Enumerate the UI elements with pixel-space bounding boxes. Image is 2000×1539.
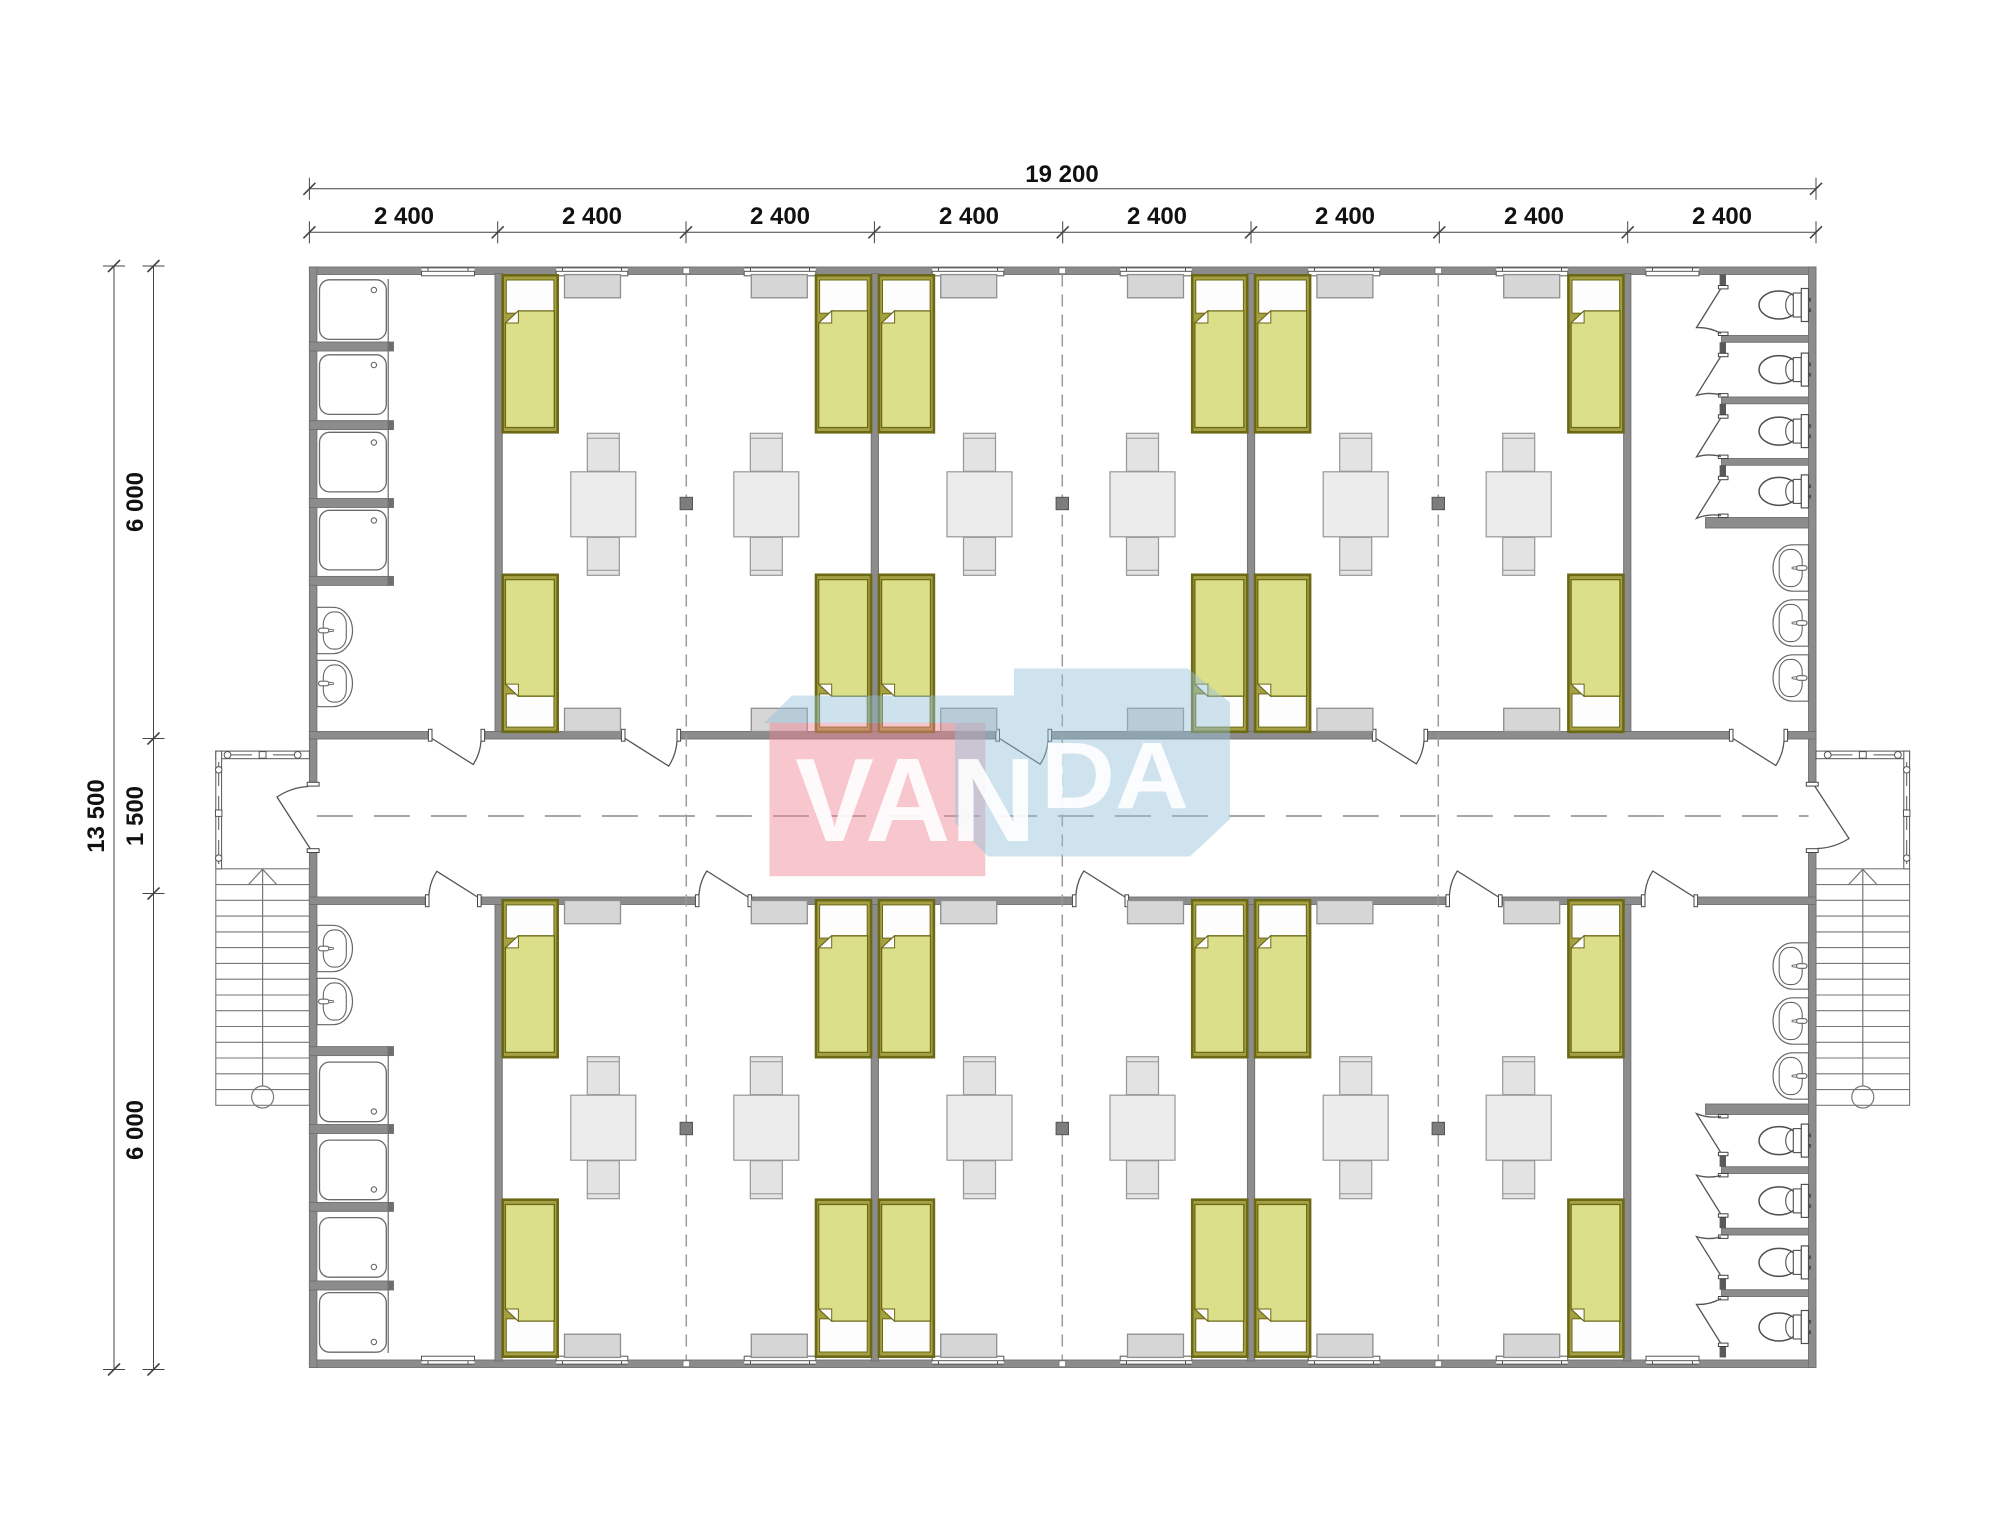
svg-text:2 400: 2 400 xyxy=(1504,203,1564,230)
svg-text:6 000: 6 000 xyxy=(122,1100,149,1160)
svg-text:VAN: VAN xyxy=(795,734,1036,867)
svg-text:2 400: 2 400 xyxy=(374,203,434,230)
svg-text:19 200: 19 200 xyxy=(1025,161,1098,188)
svg-text:2 400: 2 400 xyxy=(750,203,810,230)
svg-text:1 500: 1 500 xyxy=(122,786,149,846)
svg-text:2 400: 2 400 xyxy=(1692,203,1752,230)
svg-text:2 400: 2 400 xyxy=(1127,203,1187,230)
svg-text:2 400: 2 400 xyxy=(1315,203,1375,230)
svg-text:DA: DA xyxy=(1041,723,1189,829)
svg-text:6 000: 6 000 xyxy=(122,472,149,532)
svg-text:2 400: 2 400 xyxy=(939,203,999,230)
svg-text:13 500: 13 500 xyxy=(83,779,110,852)
svg-text:2 400: 2 400 xyxy=(562,203,622,230)
